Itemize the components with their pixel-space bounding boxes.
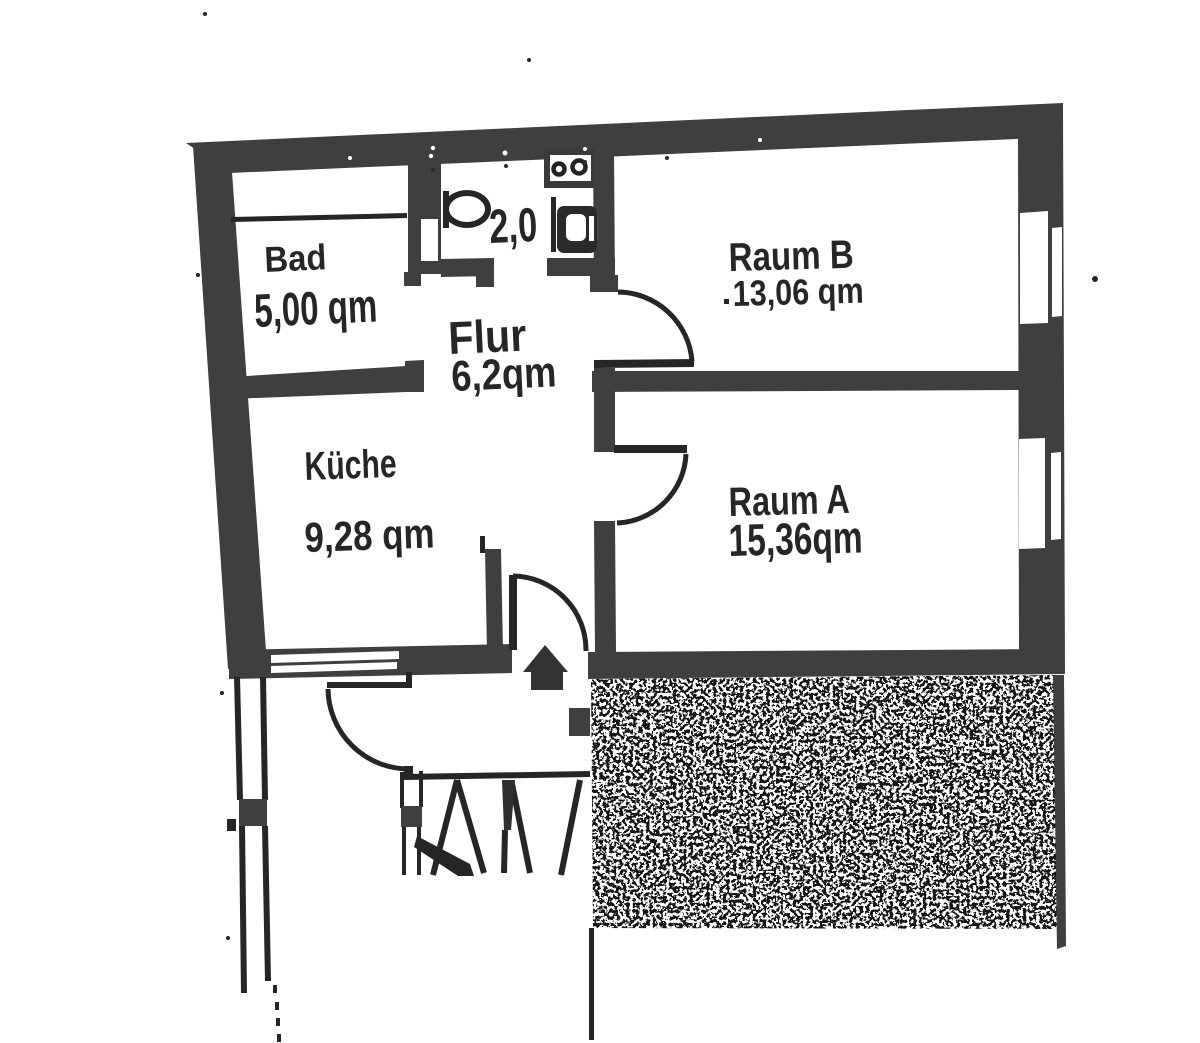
svg-text:6,2qm: 6,2qm bbox=[450, 348, 557, 401]
svg-text:9,28 qm: 9,28 qm bbox=[304, 509, 436, 561]
svg-text:Küche: Küche bbox=[304, 442, 397, 489]
svg-text:5,00 qm: 5,00 qm bbox=[253, 278, 378, 337]
svg-text:13,06 qm: 13,06 qm bbox=[732, 270, 864, 314]
svg-text:2,0: 2,0 bbox=[488, 199, 538, 254]
svg-text:15,36qm: 15,36qm bbox=[728, 512, 863, 566]
svg-text:Bad: Bad bbox=[264, 236, 328, 280]
